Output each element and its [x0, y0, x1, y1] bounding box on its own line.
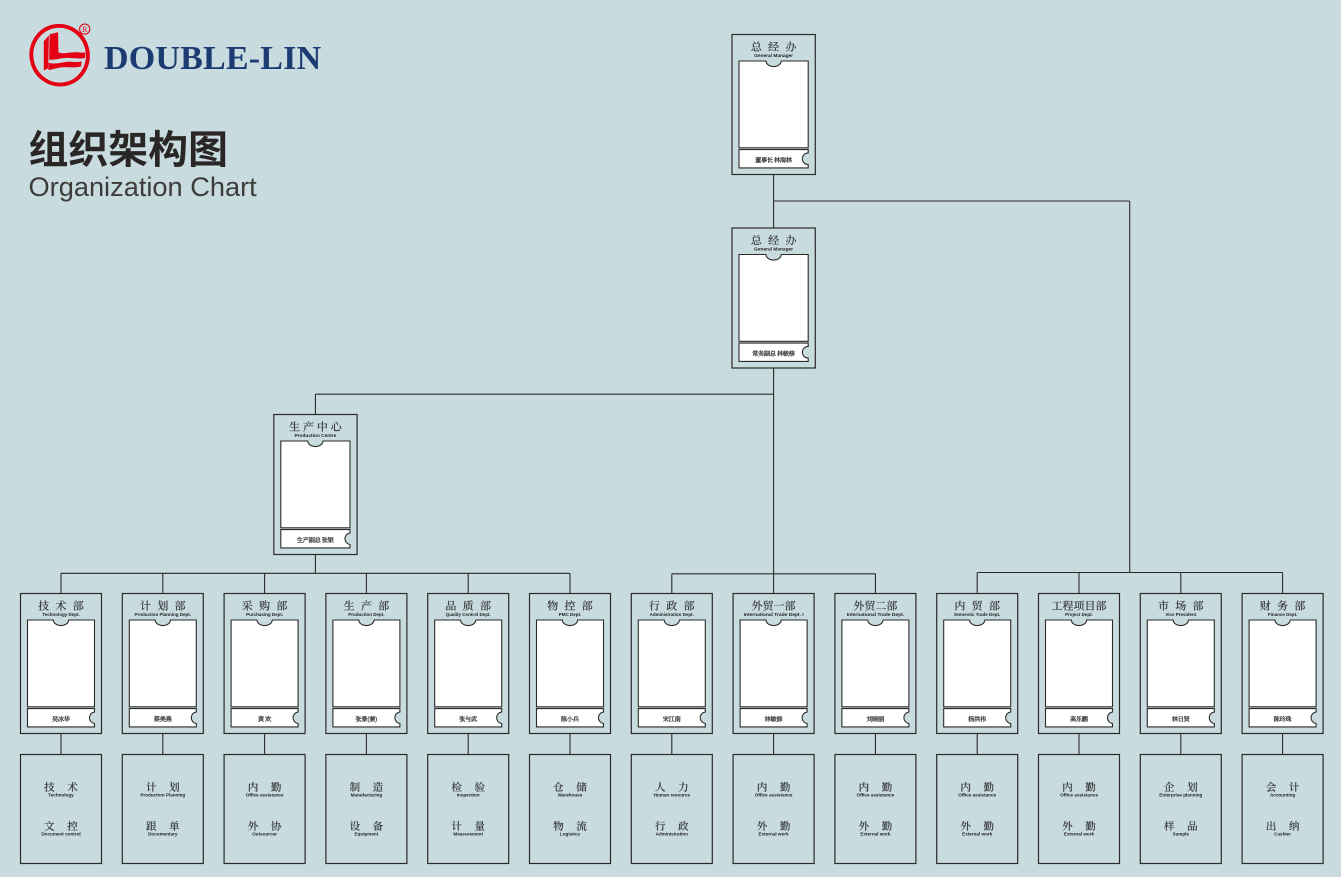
svg-text:Outsourcer: Outsourcer: [252, 832, 277, 837]
svg-text:Human resource: Human resource: [654, 792, 691, 797]
svg-text:International Trade Dept.: International Trade Dept.: [847, 612, 905, 618]
svg-text:General Manager: General Manager: [754, 246, 793, 252]
svg-text:R: R: [82, 25, 88, 34]
svg-text:Sample: Sample: [1173, 832, 1190, 837]
svg-text:Warehouse: Warehouse: [558, 792, 583, 797]
svg-text:Production Centre: Production Centre: [294, 433, 336, 439]
svg-text:External work: External work: [860, 832, 891, 837]
svg-text:Production Planning Dept.: Production Planning Dept.: [135, 612, 192, 617]
svg-text:Quality Control Dept.: Quality Control Dept.: [446, 612, 491, 617]
svg-text:Office assistance: Office assistance: [755, 792, 793, 797]
svg-text:External work: External work: [759, 832, 790, 837]
svg-text:Measurement: Measurement: [453, 832, 483, 837]
svg-text:External work: External work: [1064, 832, 1095, 837]
svg-text:International Trade Dept. I: International Trade Dept. I: [744, 612, 805, 618]
svg-text:Office assistance: Office assistance: [958, 792, 996, 797]
svg-text:Logistics: Logistics: [560, 832, 581, 837]
svg-text:Production Dept.: Production Dept.: [348, 612, 384, 617]
svg-text:Equipment: Equipment: [355, 832, 379, 837]
svg-text:Inspection: Inspection: [457, 792, 480, 797]
svg-text:DOUBLE-LIN: DOUBLE-LIN: [104, 40, 322, 77]
svg-text:Manufacturing: Manufacturing: [351, 792, 383, 797]
svg-text:Technology Dept.: Technology Dept.: [42, 612, 79, 617]
svg-text:Administration Dept.: Administration Dept.: [650, 612, 694, 617]
svg-text:External work: External work: [962, 832, 993, 837]
svg-text:Project Dept.: Project Dept.: [1065, 612, 1093, 617]
svg-text:Enterprise planning: Enterprise planning: [1159, 792, 1202, 797]
svg-text:PMC Dept.: PMC Dept.: [559, 612, 582, 617]
svg-text:Accounting: Accounting: [1270, 792, 1295, 797]
svg-text:Purchasing Dept.: Purchasing Dept.: [246, 612, 283, 617]
svg-text:Vice President: Vice President: [1165, 612, 1196, 617]
svg-text:Production Planning: Production Planning: [140, 792, 185, 797]
svg-text:Technology: Technology: [48, 792, 74, 797]
svg-text:Office assistance: Office assistance: [1060, 792, 1098, 797]
svg-text:Domestic Trade Dept.: Domestic Trade Dept.: [954, 612, 1000, 617]
svg-text:Documentary: Documentary: [148, 832, 178, 837]
svg-text:General Manager: General Manager: [754, 53, 793, 59]
svg-text:Office assistance: Office assistance: [857, 792, 895, 797]
svg-text:Cashier: Cashier: [1274, 832, 1291, 837]
svg-text:Organization Chart: Organization Chart: [29, 171, 258, 202]
svg-text:Finance Dept.: Finance Dept.: [1268, 612, 1298, 617]
svg-text:Office assistance: Office assistance: [246, 792, 284, 797]
svg-text:Document control: Document control: [41, 832, 80, 837]
svg-text:Administration: Administration: [656, 832, 689, 837]
